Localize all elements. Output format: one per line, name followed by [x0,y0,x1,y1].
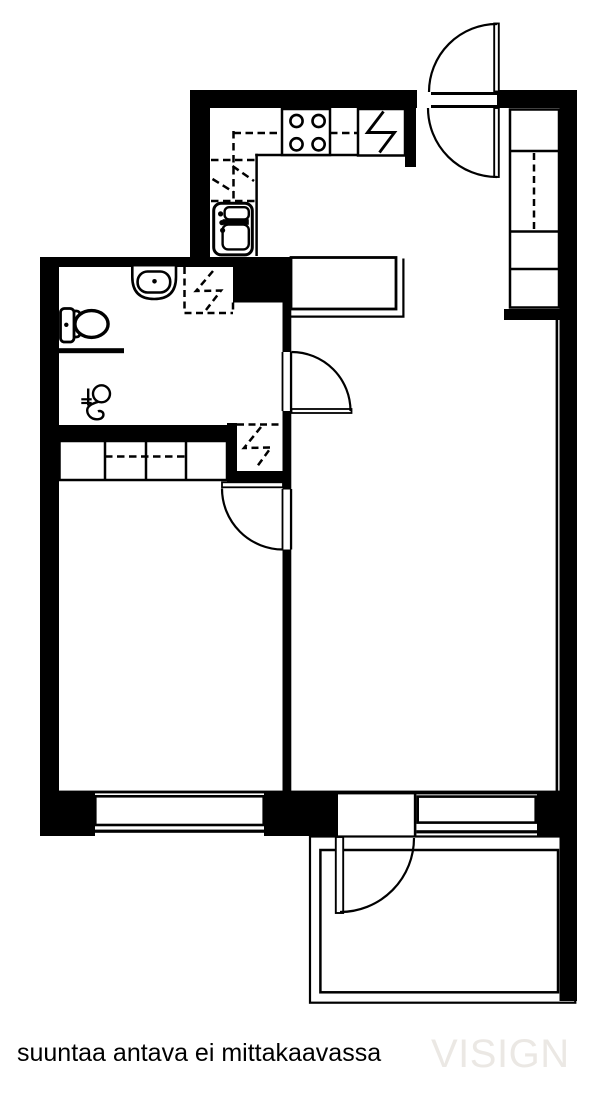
svg-text:suuntaa antava ei mittakaavass: suuntaa antava ei mittakaavassa [17,1039,381,1067]
svg-text:VISIGN: VISIGN [431,1032,570,1076]
